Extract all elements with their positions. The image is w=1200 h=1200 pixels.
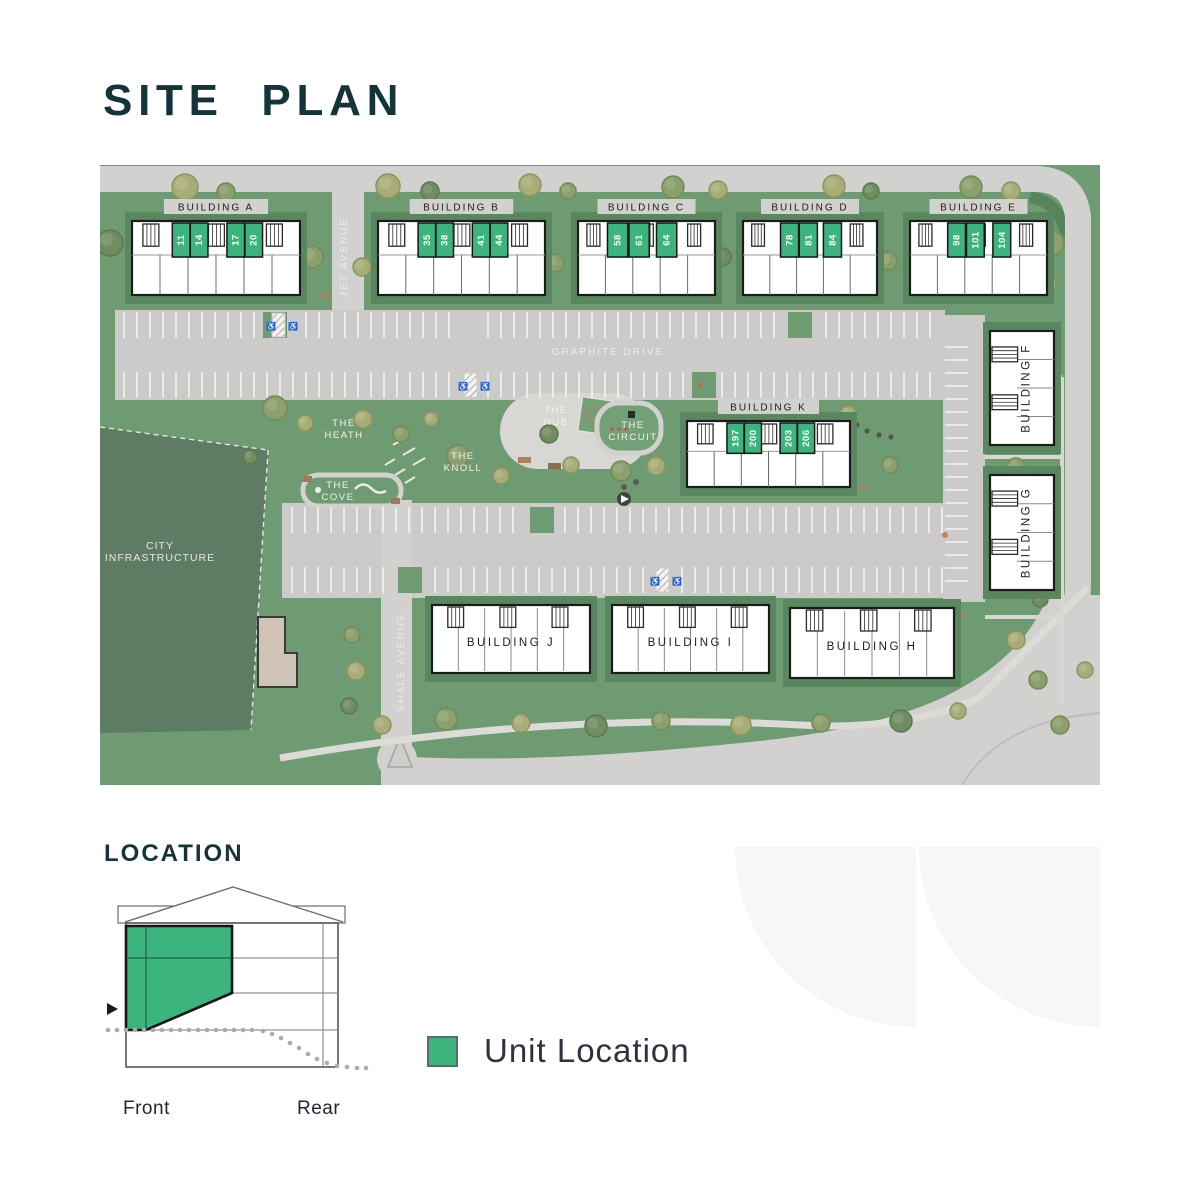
tree — [823, 175, 845, 197]
accessible-parking-icon: ♿ — [288, 321, 298, 331]
area-label-the-knoll: THE — [451, 451, 475, 462]
tree — [217, 183, 235, 201]
unit-location-label: Unit Location — [484, 1032, 690, 1070]
tree — [297, 415, 313, 431]
street-label-shale-avenue: SHALE AVENUE — [396, 612, 407, 711]
area-label-the-hub: HUB — [544, 417, 569, 428]
street-label-graphite-drive: GRAPHITE DRIVE — [552, 347, 664, 358]
tree — [100, 230, 123, 256]
tree — [652, 712, 670, 730]
tree — [435, 708, 457, 730]
tree — [341, 698, 357, 714]
building-d-label: BUILDING D — [771, 203, 848, 214]
unit-location-diagram — [103, 872, 373, 1082]
area-label-the-knoll: KNOLL — [444, 463, 483, 474]
unit-101-number: 101 — [970, 231, 981, 249]
location-heading: LOCATION — [104, 840, 244, 868]
unit-location-legend: Unit Location — [427, 1032, 690, 1070]
tree — [421, 182, 439, 200]
unit-64-number: 64 — [662, 234, 673, 246]
building-h-label: BUILDING H — [827, 641, 918, 653]
tree — [1002, 182, 1020, 200]
unit-104-number: 104 — [997, 231, 1008, 249]
front-label: Front — [123, 1098, 170, 1120]
unit-20-number: 20 — [249, 234, 260, 246]
building-b-label: BUILDING B — [423, 203, 500, 214]
tree — [519, 174, 541, 196]
unit-78-number: 78 — [785, 234, 796, 246]
tree — [354, 410, 372, 428]
tree — [243, 450, 257, 464]
unit-44-number: 44 — [494, 234, 505, 246]
unit-11-number: 11 — [176, 234, 187, 245]
unit-location-swatch — [427, 1036, 458, 1067]
area-label-the-circuit: THE — [621, 420, 645, 431]
tree — [890, 710, 912, 732]
tree — [512, 714, 530, 732]
tree — [812, 714, 830, 732]
tree — [662, 176, 684, 198]
tree — [353, 258, 371, 276]
building-k: BUILDING K197200203206 — [680, 399, 857, 496]
unit-84-number: 84 — [827, 234, 838, 246]
building-e: BUILDING E98101104 — [903, 199, 1054, 304]
building-a-label: BUILDING A — [178, 203, 254, 214]
building-c: BUILDING C586164 — [571, 199, 722, 304]
tree — [882, 457, 898, 473]
building-a: BUILDING A11141720 — [125, 199, 307, 304]
tree — [172, 174, 198, 200]
page-title: SITE PLAN — [103, 76, 404, 126]
unit-41-number: 41 — [476, 234, 487, 246]
tree — [1029, 671, 1047, 689]
tree — [611, 461, 631, 481]
tree — [560, 183, 576, 199]
building-f: BUILDING F — [983, 322, 1061, 454]
unit-17-number: 17 — [231, 234, 242, 246]
building-f-label: BUILDING F — [1021, 343, 1033, 433]
unit-98-number: 98 — [952, 234, 963, 246]
accessible-parking-icon: ♿ — [458, 381, 468, 391]
building-j-label: BUILDING J — [467, 637, 555, 649]
tree — [424, 412, 438, 426]
building-e-label: BUILDING E — [940, 203, 1017, 214]
building-c-label: BUILDING C — [608, 203, 685, 214]
tree — [1077, 662, 1093, 678]
tree — [731, 715, 751, 735]
accessible-parking-icon: ♿ — [266, 321, 276, 331]
tree — [344, 627, 360, 643]
building-k-label: BUILDING K — [730, 403, 807, 414]
building-j: BUILDING J — [425, 596, 597, 682]
building-h: BUILDING H — [783, 599, 961, 687]
tree — [863, 183, 879, 199]
unit-61-number: 61 — [634, 234, 645, 246]
tree — [647, 457, 665, 475]
area-label-city-infrastructure: CITY — [146, 540, 174, 552]
roof-line — [125, 887, 343, 922]
tree — [709, 181, 727, 199]
tree — [373, 716, 391, 734]
area-label-the-hub: THE — [544, 405, 568, 416]
building-i: BUILDING I — [605, 596, 776, 682]
tree — [1051, 716, 1069, 734]
city-infrastructure-area — [100, 427, 268, 733]
level-arrow-icon — [107, 1003, 118, 1015]
building-d: BUILDING D788184 — [736, 199, 884, 304]
tree — [585, 715, 607, 737]
building-b: BUILDING B35384144 — [371, 199, 552, 304]
unit-14-number: 14 — [194, 234, 205, 246]
area-label-city-infrastructure: INFRASTRUCTURE — [105, 552, 215, 564]
unit-81-number: 81 — [803, 234, 814, 246]
tree — [493, 468, 509, 484]
building-i-label: BUILDING I — [648, 637, 734, 649]
area-label-the-circuit: CIRCUIT — [608, 432, 657, 443]
tree — [563, 457, 579, 473]
accessible-parking-icon: ♿ — [672, 576, 682, 586]
unit-35-number: 35 — [422, 234, 433, 246]
street-label-jet-avenue: JET AVENUE — [339, 217, 350, 297]
unit-203-number: 203 — [784, 430, 795, 447]
area-label-the-cove: THE — [326, 480, 350, 491]
area-label-the-heath: HEATH — [325, 430, 364, 441]
tree — [376, 174, 400, 198]
rear-label: Rear — [297, 1098, 340, 1120]
decorative-petal-left — [735, 847, 916, 1027]
unit-38-number: 38 — [440, 234, 451, 246]
unit-58-number: 58 — [613, 234, 624, 246]
building-g-label: BUILDING G — [1021, 487, 1033, 578]
tree — [393, 426, 409, 442]
tree — [263, 396, 287, 420]
tree — [347, 662, 365, 680]
accessible-parking-icon: ♿ — [650, 576, 660, 586]
building-g: BUILDING G — [983, 466, 1061, 599]
area-label-the-cove: COVE — [322, 492, 355, 503]
tree — [1007, 631, 1025, 649]
unit-200-number: 200 — [748, 430, 759, 447]
unit-206-number: 206 — [801, 430, 812, 447]
tree — [950, 703, 966, 719]
site-plan-map: ♿♿♿♿♿♿ BUILDING A11141720BUILDING B35384… — [100, 165, 1100, 785]
area-label-the-heath: THE — [332, 418, 356, 429]
accessible-parking-icon: ♿ — [480, 381, 490, 391]
decorative-petal-right — [919, 847, 1100, 1027]
tree — [960, 176, 982, 198]
unit-197-number: 197 — [730, 430, 741, 447]
